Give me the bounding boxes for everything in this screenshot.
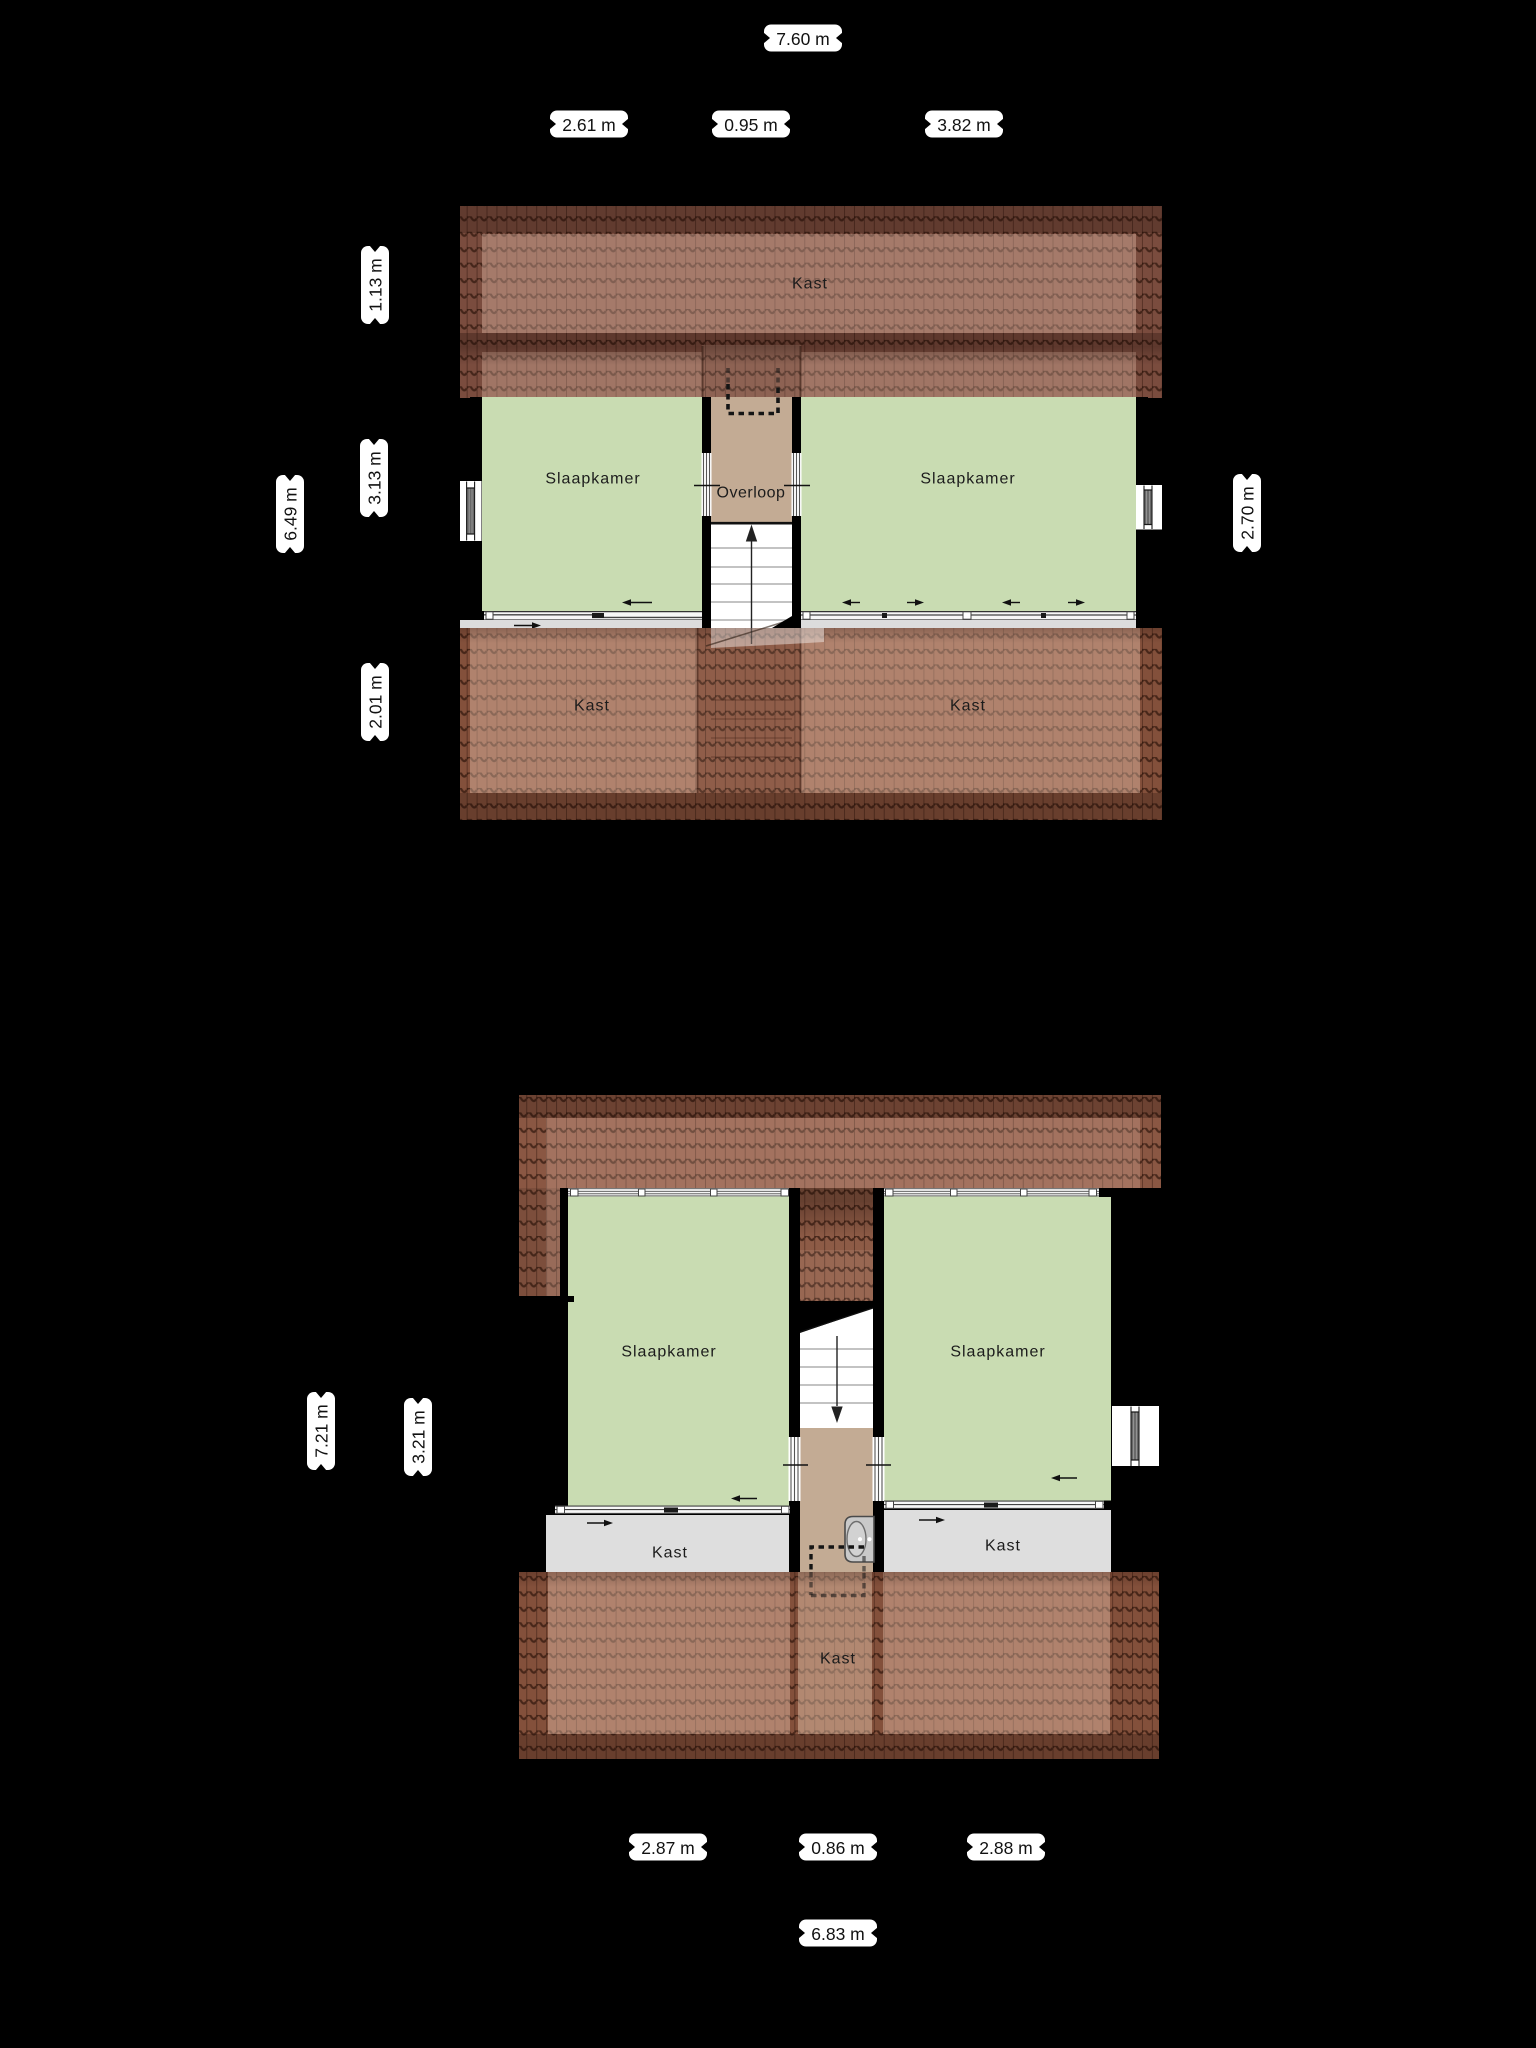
svg-text:1.13 m: 1.13 m [366, 258, 386, 312]
svg-text:Kast: Kast [652, 1545, 688, 1562]
svg-text:3.82 m: 3.82 m [937, 115, 991, 135]
svg-text:2.61 m: 2.61 m [562, 115, 616, 135]
svg-text:Kast: Kast [950, 698, 986, 715]
svg-text:Slaapkamer: Slaapkamer [621, 1344, 716, 1361]
svg-text:2.01 m: 2.01 m [366, 675, 386, 729]
svg-text:Slaapkamer: Slaapkamer [920, 471, 1015, 488]
svg-text:Kast: Kast [792, 276, 828, 293]
svg-text:0.95 m: 0.95 m [724, 115, 778, 135]
svg-text:2.88 m: 2.88 m [979, 1838, 1033, 1858]
svg-text:Kast: Kast [820, 1651, 856, 1668]
svg-text:2.87 m: 2.87 m [641, 1838, 695, 1858]
svg-text:2.70 m: 2.70 m [1238, 486, 1258, 540]
svg-text:7.60 m: 7.60 m [776, 29, 830, 49]
svg-text:3.21 m: 3.21 m [409, 1410, 429, 1464]
svg-text:Slaapkamer: Slaapkamer [950, 1344, 1045, 1361]
svg-text:0.86 m: 0.86 m [811, 1838, 865, 1858]
svg-text:7.21 m: 7.21 m [312, 1404, 332, 1458]
svg-text:6.83 m: 6.83 m [811, 1924, 865, 1944]
svg-text:6.49 m: 6.49 m [281, 487, 301, 541]
svg-text:Kast: Kast [574, 698, 610, 715]
svg-text:Kast: Kast [985, 1538, 1021, 1555]
svg-text:3.13 m: 3.13 m [365, 451, 385, 505]
svg-text:Slaapkamer: Slaapkamer [545, 471, 640, 488]
svg-text:Overloop: Overloop [717, 485, 786, 502]
